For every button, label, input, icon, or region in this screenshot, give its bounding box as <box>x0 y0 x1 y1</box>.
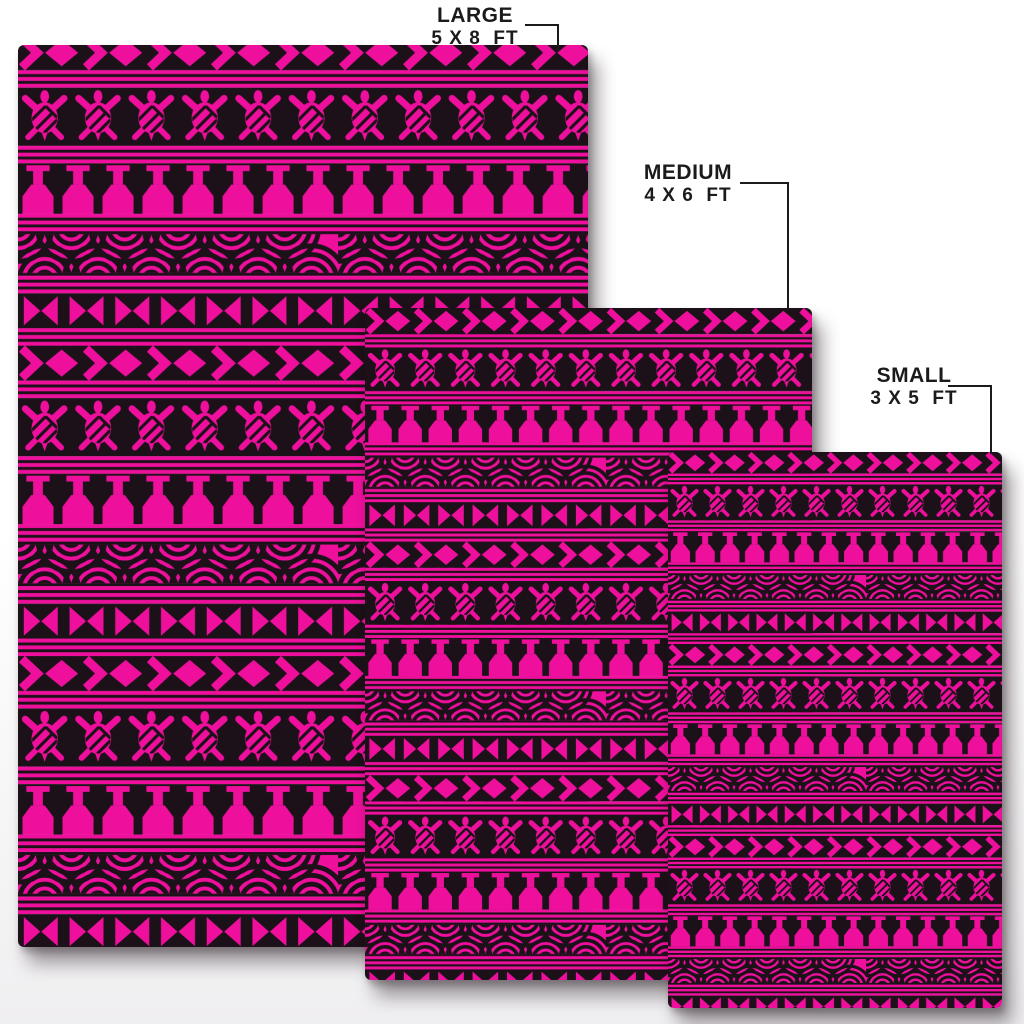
rug-small-3x5 <box>668 452 1002 1008</box>
label-medium-dimensions: 4 X 6 FT <box>628 185 748 206</box>
label-medium-title: MEDIUM <box>628 161 748 185</box>
label-medium: MEDIUM 4 X 6 FT <box>628 161 748 206</box>
label-large-dimensions: 5 X 8 FT <box>415 28 535 49</box>
rug-small-pattern <box>668 452 1002 1008</box>
label-large-title: LARGE <box>415 4 535 28</box>
label-small-title: SMALL <box>860 364 968 388</box>
rug-size-comparison: LARGE 5 X 8 FT MEDIUM 4 X 6 FT SMALL 3 X… <box>0 0 1024 1024</box>
label-large: LARGE 5 X 8 FT <box>415 4 535 49</box>
label-small: SMALL 3 X 5 FT <box>860 364 968 409</box>
label-small-dimensions: 3 X 5 FT <box>860 388 968 409</box>
